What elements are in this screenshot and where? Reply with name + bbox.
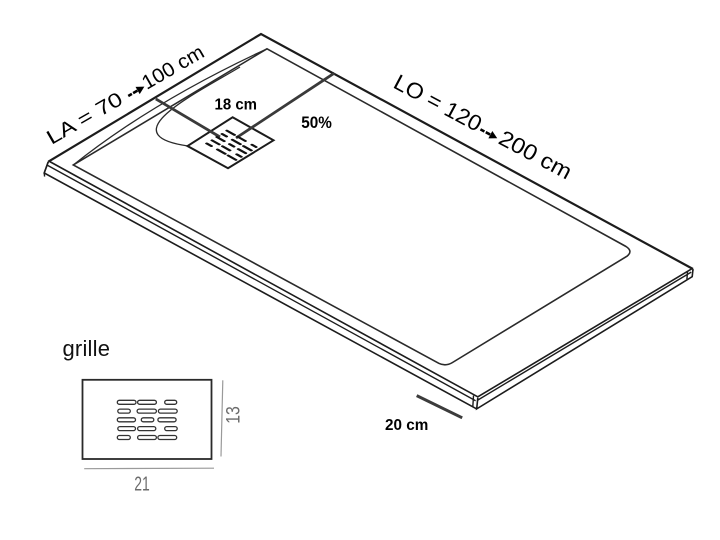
svg-text:20 cm: 20 cm: [385, 417, 428, 434]
svg-text:18 cm: 18 cm: [215, 97, 258, 114]
svg-text:grille: grille: [63, 336, 111, 361]
svg-text:21: 21: [134, 473, 150, 495]
svg-text:13: 13: [223, 406, 244, 424]
svg-text:50%: 50%: [301, 113, 332, 132]
